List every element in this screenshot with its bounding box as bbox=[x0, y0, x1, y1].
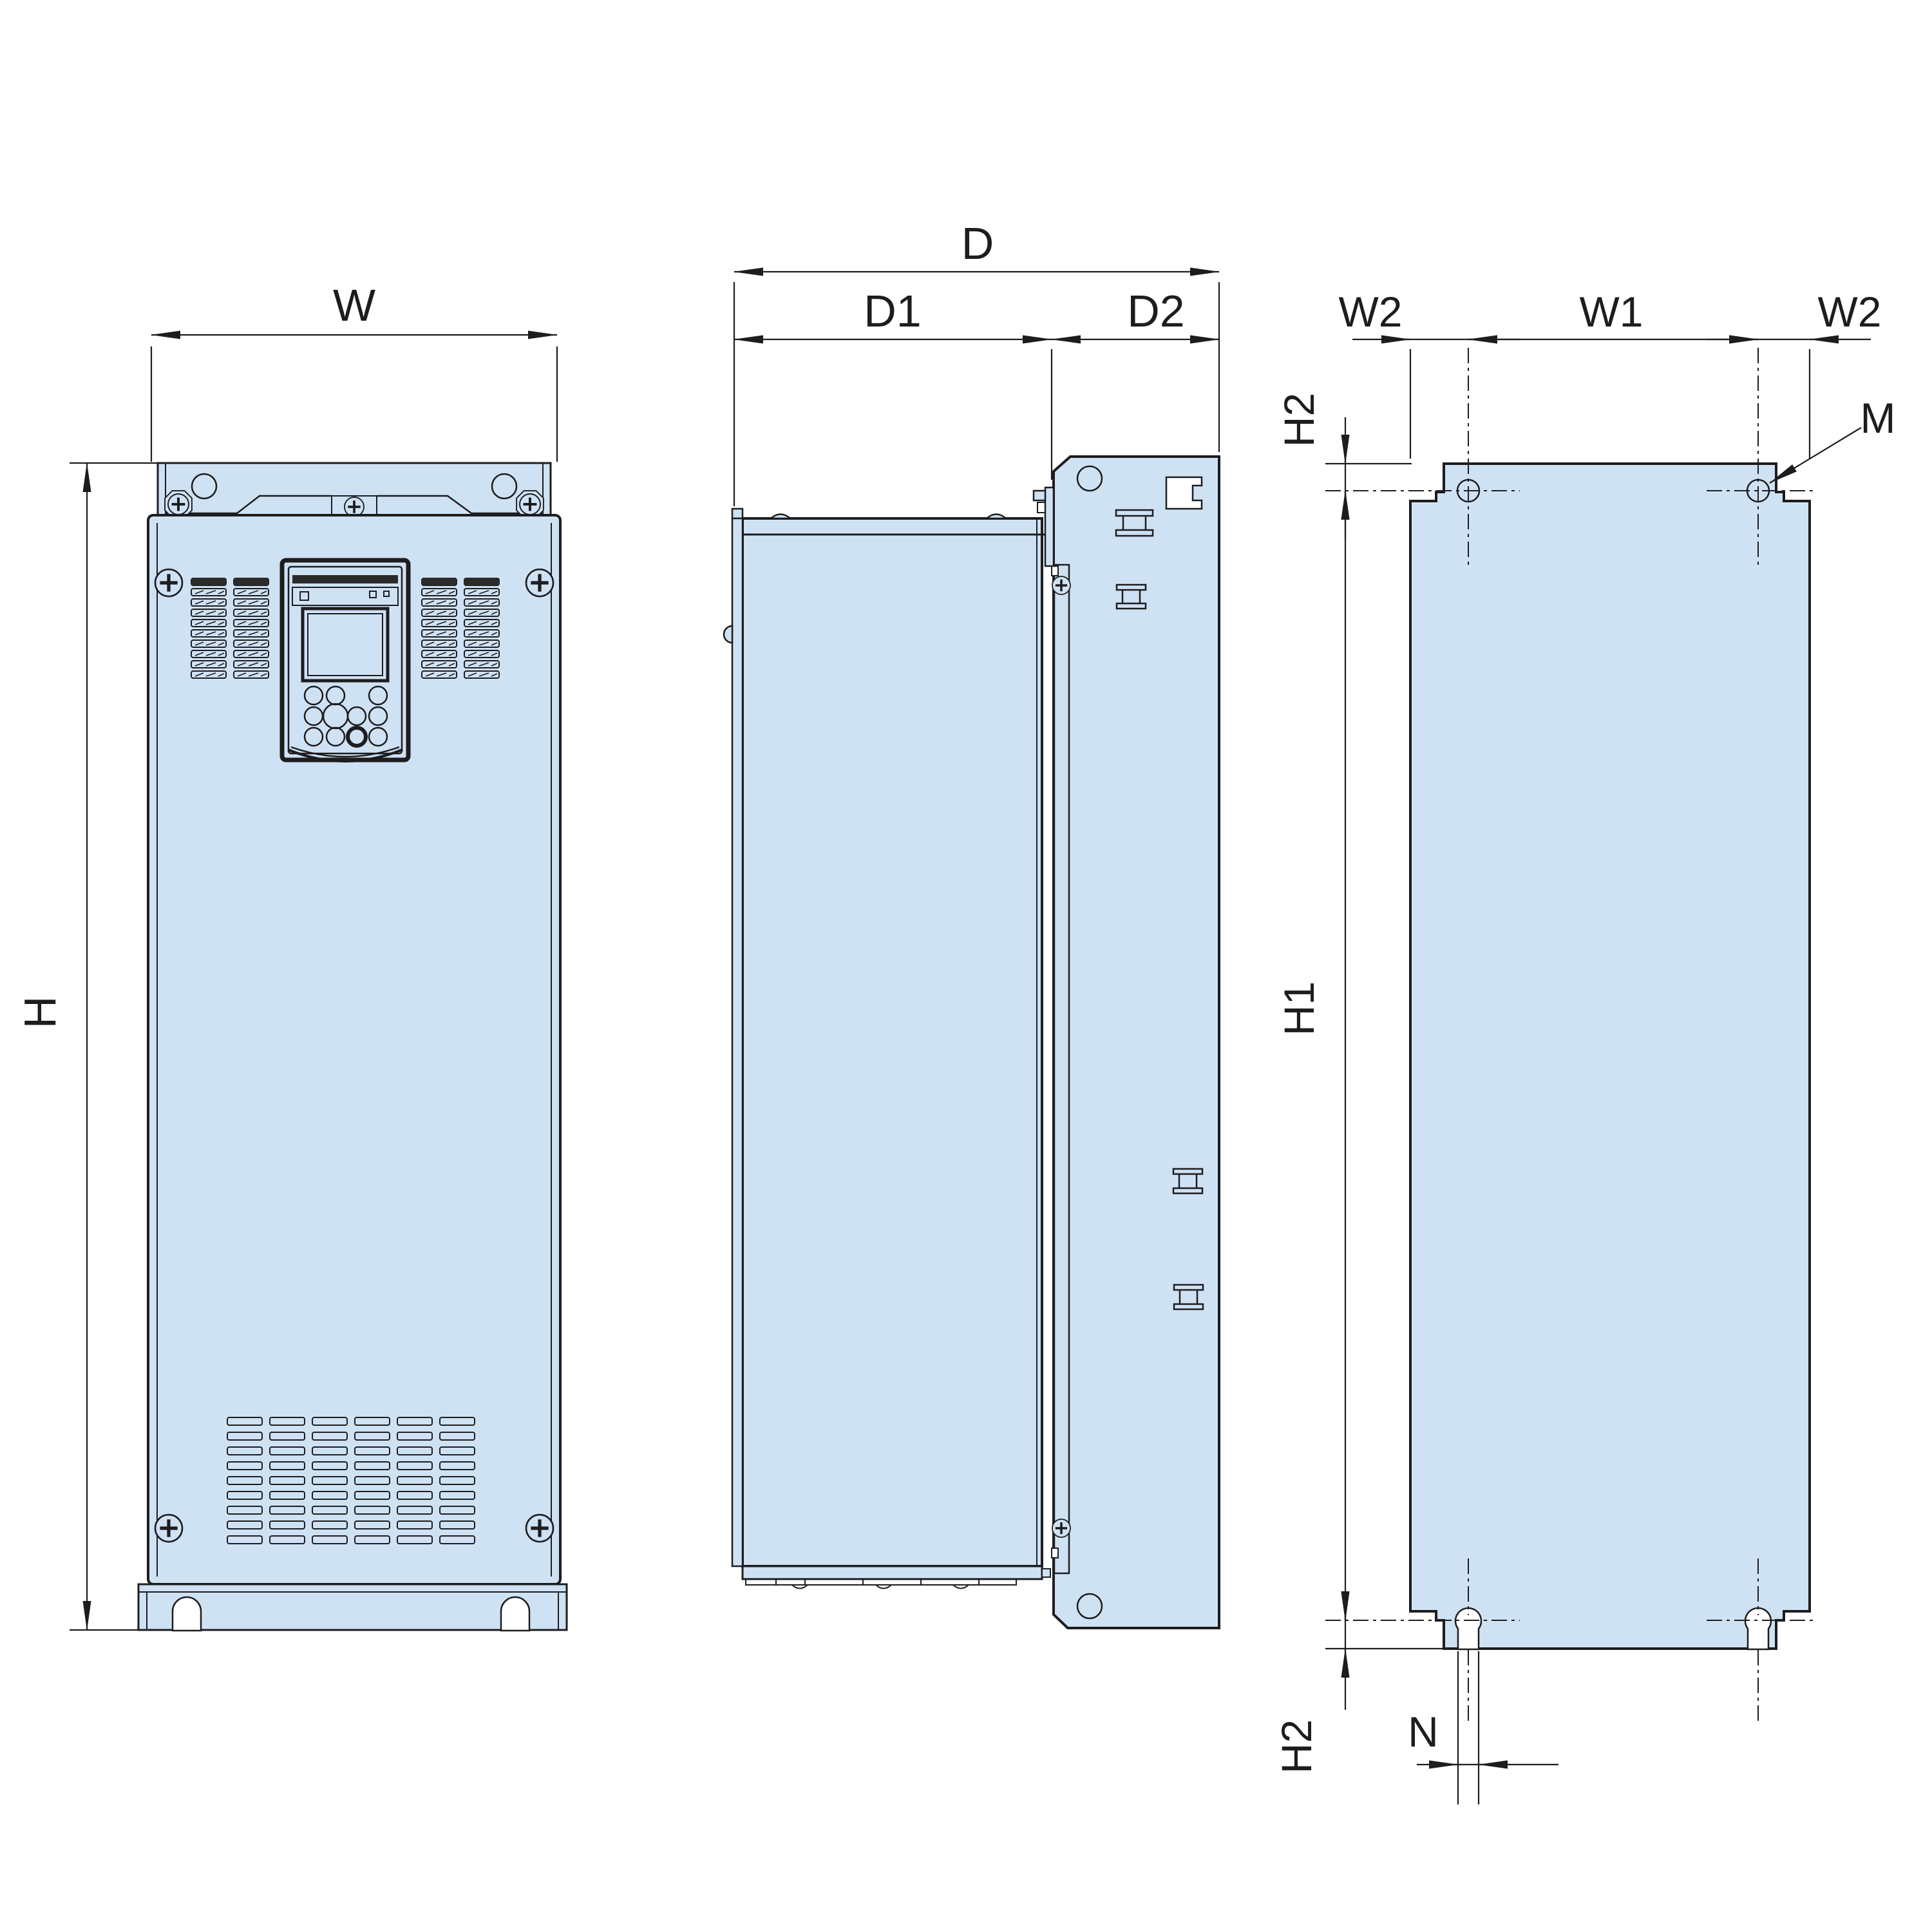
dim-label-w2-right: W2 bbox=[1818, 288, 1882, 336]
dim-label-d: D bbox=[961, 218, 994, 269]
screw-icon bbox=[1052, 576, 1070, 594]
dimension-width-margins: W2 W1 W2 bbox=[1339, 288, 1882, 459]
keypad bbox=[282, 560, 408, 761]
screw-icon bbox=[1052, 1519, 1070, 1537]
dim-label-d2: D2 bbox=[1127, 286, 1184, 336]
side-vents-left bbox=[191, 578, 269, 679]
screw-icon bbox=[526, 1515, 553, 1542]
side-view: D D1 D2 bbox=[724, 218, 1219, 1628]
plate-flange bbox=[1054, 565, 1069, 1573]
screw-icon bbox=[520, 494, 540, 515]
dim-label-h2-top: H2 bbox=[1275, 393, 1323, 447]
flange-notch bbox=[1052, 1548, 1058, 1558]
enclosure-profile bbox=[724, 509, 1050, 1589]
rear-view: W2 W1 W2 H2 H1 H2 M N bbox=[1273, 288, 1895, 1804]
dim-label-h: H bbox=[15, 996, 65, 1029]
dimension-slot-width: N bbox=[1408, 1651, 1558, 1804]
screw-icon bbox=[345, 497, 364, 516]
dim-label-n: N bbox=[1408, 1708, 1439, 1756]
bottom-bracket bbox=[138, 1584, 567, 1631]
dimension-width: W bbox=[151, 280, 557, 462]
screw-icon bbox=[155, 569, 182, 596]
screw-icon bbox=[526, 569, 553, 596]
mounting-panel bbox=[1410, 464, 1810, 1649]
front-view: W H bbox=[15, 280, 567, 1631]
dim-label-h2-bottom: H2 bbox=[1273, 1719, 1320, 1774]
front-face-strip bbox=[732, 518, 743, 1566]
dim-label-m: M bbox=[1861, 394, 1896, 442]
dimension-drawing: W H bbox=[0, 0, 1932, 1932]
side-vents-right bbox=[421, 578, 500, 679]
foot-notch bbox=[173, 1597, 201, 1631]
dim-label-w2-left: W2 bbox=[1339, 288, 1403, 336]
flange-notch bbox=[1052, 566, 1058, 576]
base-plate bbox=[743, 1566, 1042, 1579]
bottom-vent-grid bbox=[227, 1417, 475, 1546]
foot-notch bbox=[501, 1597, 529, 1631]
top-screw-head bbox=[987, 515, 1006, 519]
dim-label-h1: H1 bbox=[1275, 981, 1323, 1036]
dim-label-w1: W1 bbox=[1580, 288, 1643, 336]
clamp-strip bbox=[1045, 488, 1054, 566]
keypad-top-bar bbox=[292, 575, 398, 583]
mounting-plate-profile bbox=[1034, 457, 1219, 1628]
screw-icon bbox=[155, 1515, 182, 1542]
callout-mounting-hole: M bbox=[1770, 394, 1895, 483]
top-screw-head bbox=[771, 515, 790, 519]
top-bracket bbox=[158, 463, 551, 518]
dim-label-d1: D1 bbox=[864, 286, 921, 336]
hinge-bump bbox=[724, 626, 732, 643]
clamp-bolt bbox=[1034, 491, 1045, 500]
dim-label-w: W bbox=[333, 280, 375, 330]
dimension-height: H bbox=[15, 463, 164, 1630]
screw-icon bbox=[168, 494, 189, 515]
